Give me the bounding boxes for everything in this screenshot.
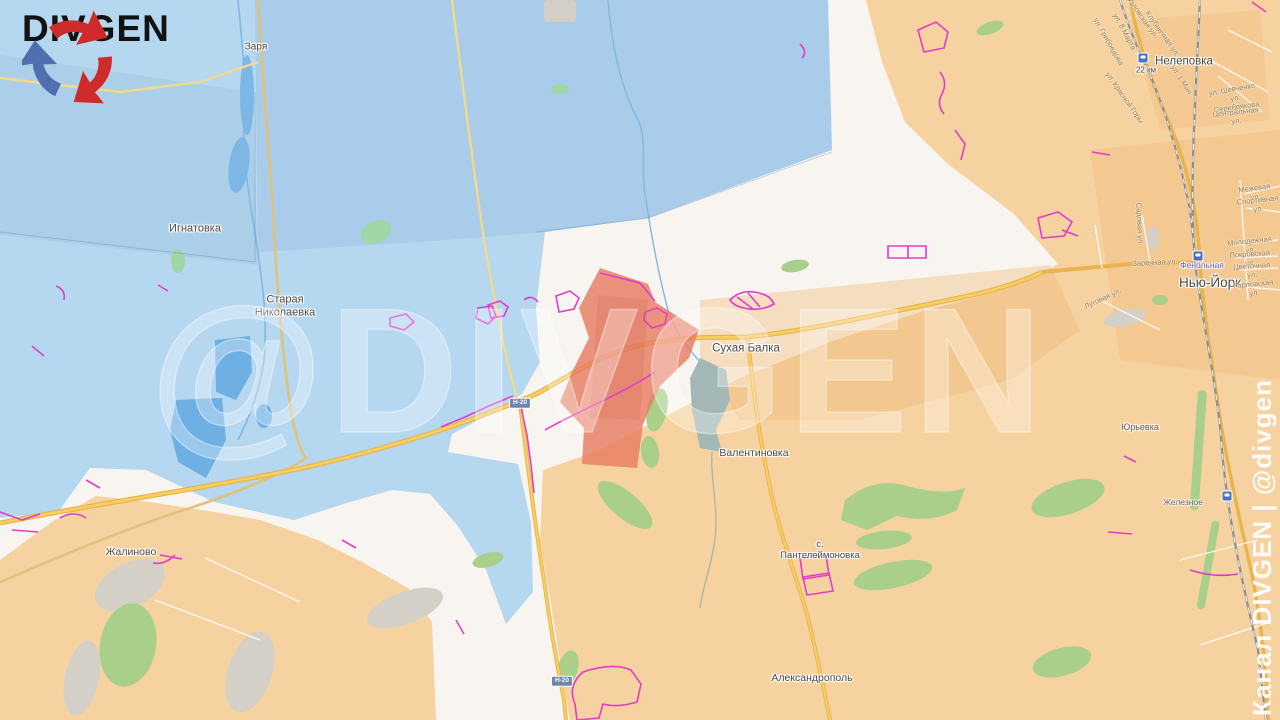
divgen-logo-icon [22, 8, 118, 112]
divgen-logo: DIVGEN [22, 8, 170, 50]
railway-station-icon-zheleznoye [1222, 491, 1233, 502]
railway-station-icon-22km [1138, 53, 1149, 64]
road-badge-h20-south: Н-20 [551, 676, 573, 687]
road-badge-h20-north: Н-20 [509, 398, 531, 409]
railway-station-icon-fenolnaya [1193, 251, 1204, 262]
blue-field-shade [255, 0, 832, 252]
map-canvas: Н-20 Н-20 Заря Игнатовка Старая Николаев… [0, 0, 1280, 720]
map-layers [0, 0, 1280, 720]
advance-zone-core [590, 295, 648, 420]
